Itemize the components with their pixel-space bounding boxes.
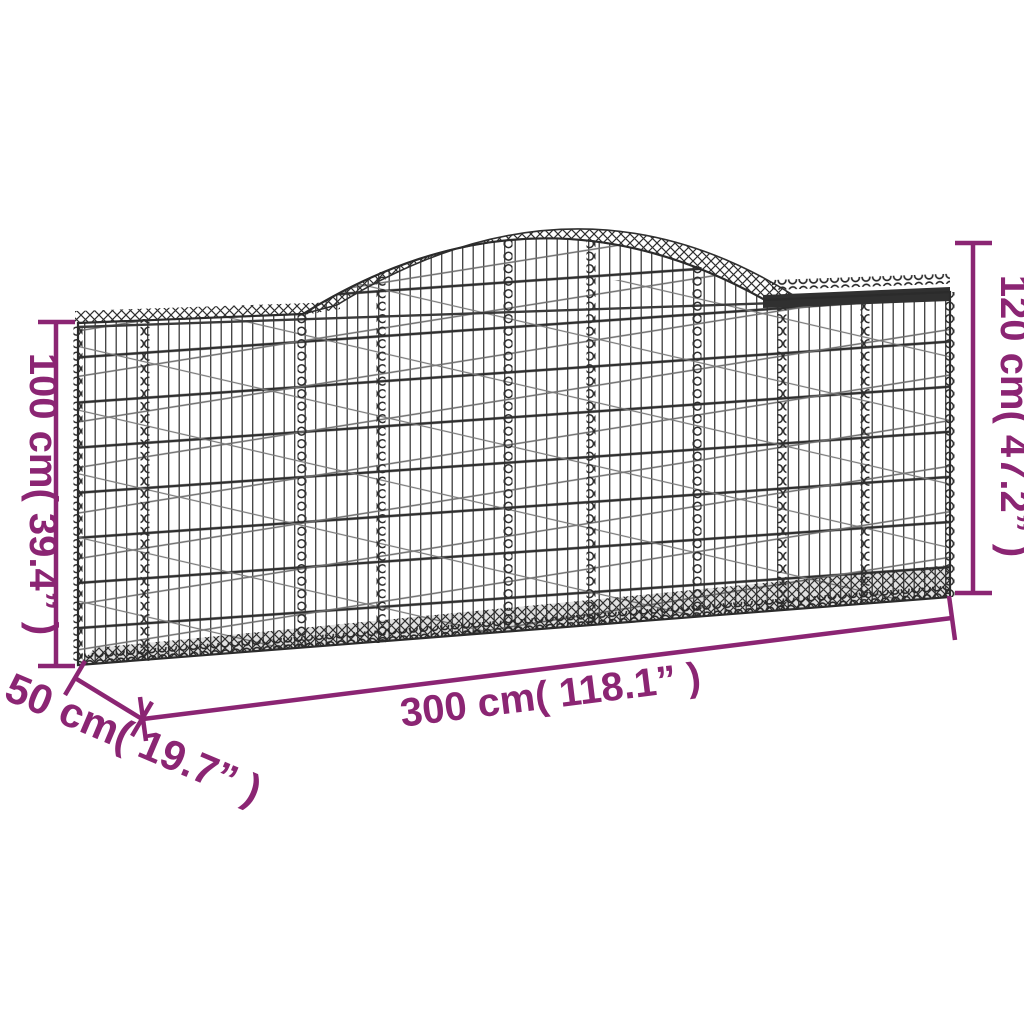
coil-column [504, 241, 513, 632]
dimension-tick [949, 596, 955, 640]
coil-column [141, 319, 150, 661]
top-coil-row [772, 274, 950, 290]
dimension-label-depth: 50 cm( 19.7” ) [0, 664, 269, 814]
product-dimension-image: 100 cm( 39.4” ) 120 cm( 47.2” ) 300 cm( … [0, 0, 1024, 1024]
coil-column [693, 267, 702, 617]
gabion-basket-illustration [60, 160, 980, 680]
dimension-label-height-right: 120 cm( 47.2” ) [992, 275, 1024, 557]
coil-column [778, 300, 787, 610]
coil-column [587, 241, 596, 626]
dimension-label-height-left: 100 cm( 39.4” ) [21, 353, 65, 635]
coil-column [861, 296, 870, 604]
dimension-depth: 50 cm( 19.7” ) [0, 661, 269, 814]
coil-column [298, 313, 307, 649]
dimension-height-left: 100 cm( 39.4” ) [21, 322, 75, 666]
gabion-diagram-canvas: 100 cm( 39.4” ) 120 cm( 47.2” ) 300 cm( … [0, 0, 1024, 1024]
coil-column [377, 272, 386, 643]
dimension-height-right: 120 cm( 47.2” ) [955, 243, 1024, 593]
